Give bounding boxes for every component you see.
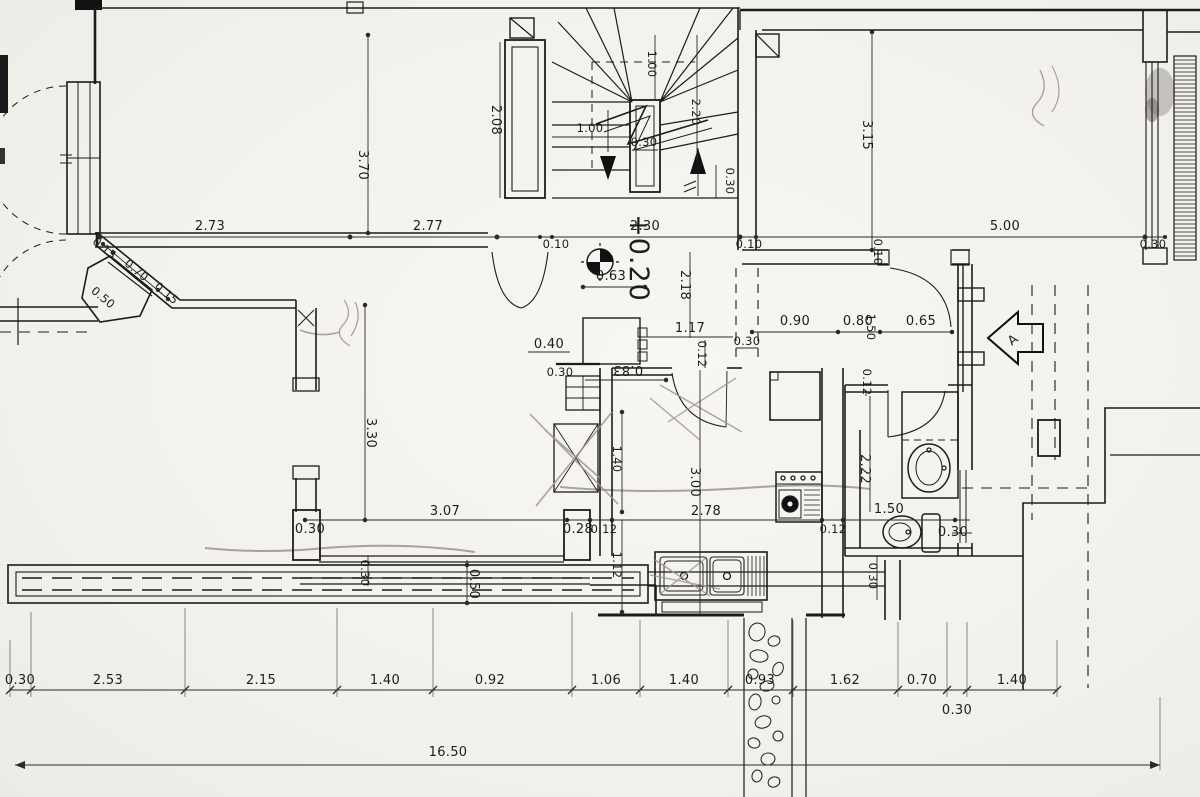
dim-label: 0.30 [547, 365, 574, 379]
overall-dim-label: 16.50 [429, 745, 468, 760]
dim-label: 0.70 [122, 256, 152, 284]
dim-label: 1.12 [610, 552, 624, 579]
dim-label: 2.20 [689, 99, 703, 126]
dim-label: 1.62 [830, 673, 860, 688]
section-arrow: A [988, 312, 1043, 364]
level-mark-label: +0.20 [623, 214, 654, 302]
dim-label: 0.30 [631, 135, 658, 149]
dim-label: 2.77 [413, 219, 443, 234]
fridge [770, 372, 820, 420]
shutter-box [1174, 56, 1196, 260]
dim-label: 1.40 [669, 673, 699, 688]
dim-label: 1.00 [577, 121, 604, 135]
dim-label: 3.30 [363, 418, 378, 448]
dim-label: 0.63 [596, 269, 626, 284]
dim-label: 1.17 [675, 321, 705, 336]
dim-label: 0.30 [5, 673, 35, 688]
kitchen-sink [650, 552, 767, 612]
stair-down-arrow [600, 156, 616, 180]
dim-label: 0.10 [543, 237, 570, 251]
dim-label: 0.28 [563, 522, 593, 537]
dim-label: 0.30 [1140, 237, 1167, 251]
dim-label: 5.00 [990, 219, 1020, 234]
stove [776, 472, 822, 522]
shutter-swing-arcs [0, 86, 66, 316]
dim-label: 0.90 [780, 314, 810, 329]
dim-label: 0.12 [695, 341, 709, 368]
dim-label: 2.18 [677, 270, 692, 300]
dim-label: 0.30 [942, 703, 972, 718]
dim-label: 0.70 [907, 673, 937, 688]
dim-label: 1.06 [591, 673, 621, 688]
dim-label: 1.40 [370, 673, 400, 688]
stone-wall-strip [744, 618, 806, 797]
bottom-dimension-chain [6, 608, 1160, 770]
dim-label: 0.30 [723, 168, 737, 195]
dim-label: 0.12 [860, 369, 874, 396]
dim-label: 3.70 [355, 150, 370, 180]
dim-label: 0.92 [475, 673, 505, 688]
dim-label: 0.10 [736, 237, 763, 251]
dim-label: 0.30 [938, 525, 968, 540]
floor-plan-sheet: A [0, 0, 1200, 797]
dim-label: 3.15 [859, 120, 874, 150]
dim-label: 1.40 [610, 446, 624, 473]
dim-label: 2.53 [93, 673, 123, 688]
dim-label: 0.10 [871, 239, 885, 266]
walls [0, 2, 1200, 690]
dim-label: 2.73 [195, 219, 225, 234]
dim-label: 2.08 [488, 105, 503, 135]
dim-label: 0.30 [734, 334, 761, 348]
floor-plan-drawing: A [0, 0, 1200, 797]
dim-label: 3.00 [687, 467, 702, 497]
dim-label: 0.30 [295, 522, 325, 537]
dim-label: 0.83 [613, 362, 643, 377]
dim-label: 3.07 [430, 504, 460, 519]
dim-label: 1.50 [864, 314, 878, 341]
dim-label: 0.50 [466, 569, 481, 599]
dim-label: 0.12 [820, 522, 847, 536]
dim-label: 2.78 [691, 504, 721, 519]
dim-label: 0.40 [534, 337, 564, 352]
kitchen [530, 372, 822, 612]
staircase [552, 8, 738, 198]
washbasin [902, 392, 958, 498]
west-window [60, 82, 100, 234]
scan-artifacts [0, 0, 1175, 552]
dim-label: 2.22 [857, 454, 872, 484]
dim-label: 0.30 [358, 560, 372, 587]
dim-label: 0.30 [866, 563, 880, 590]
dimension-labels: 2.73 2.77 0.10 2.30 0.10 5.00 0.30 0.10 … [5, 51, 1166, 760]
dim-label: 1.50 [874, 502, 904, 517]
section-label: A [1005, 332, 1021, 349]
dim-label: 0.65 [906, 314, 936, 329]
dim-label: 1.00 [645, 51, 659, 78]
dim-label: 0.93 [745, 673, 775, 688]
dim-label: 2.15 [246, 673, 276, 688]
dim-label: 1.40 [997, 673, 1027, 688]
door-arc-bathroom [888, 391, 945, 437]
dim-label: 0.12 [591, 522, 618, 536]
